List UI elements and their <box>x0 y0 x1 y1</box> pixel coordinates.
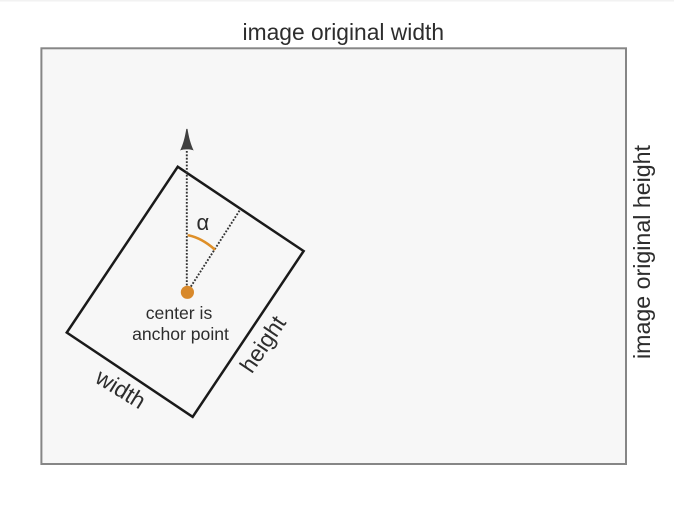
svg-text:anchor point: anchor point <box>132 324 229 344</box>
svg-text:image original width: image original width <box>243 19 444 45</box>
svg-text:α: α <box>197 210 210 235</box>
svg-text:center is: center is <box>146 303 213 323</box>
svg-text:image original height: image original height <box>629 144 655 359</box>
